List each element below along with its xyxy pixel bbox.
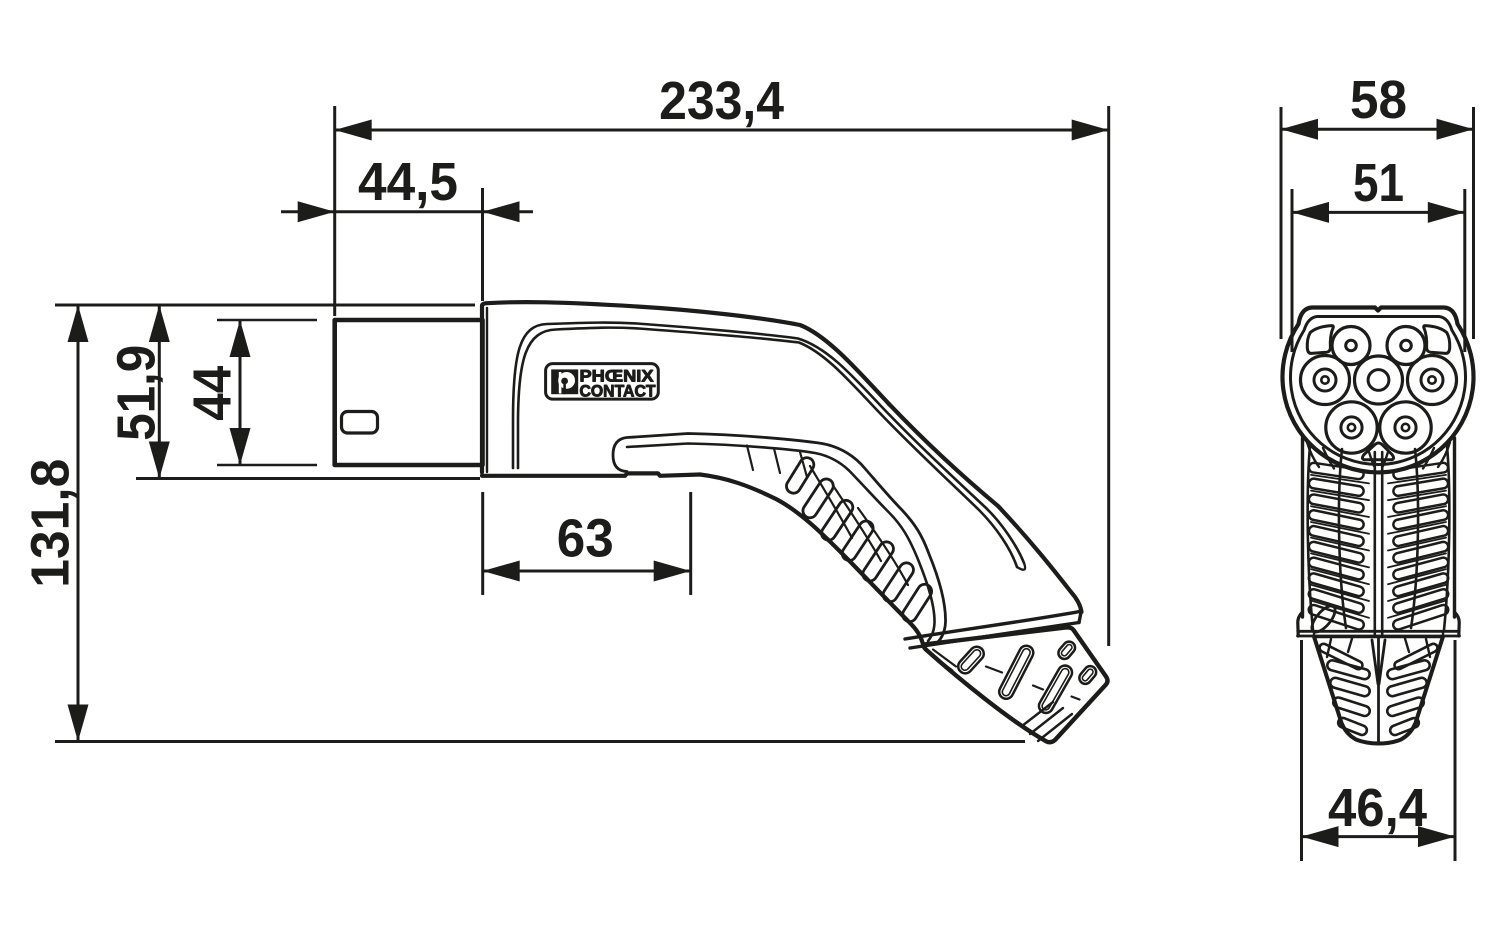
svg-text:46,4: 46,4 <box>1328 778 1427 838</box>
svg-text:51,9: 51,9 <box>107 345 167 441</box>
svg-text:44: 44 <box>182 366 242 421</box>
svg-text:51: 51 <box>1353 153 1404 213</box>
svg-text:CONTACT: CONTACT <box>580 382 657 401</box>
svg-text:44,5: 44,5 <box>358 152 458 212</box>
svg-text:233,4: 233,4 <box>659 71 784 131</box>
svg-text:58: 58 <box>1350 70 1407 130</box>
svg-text:63: 63 <box>557 509 614 569</box>
svg-text:131,8: 131,8 <box>21 459 81 588</box>
